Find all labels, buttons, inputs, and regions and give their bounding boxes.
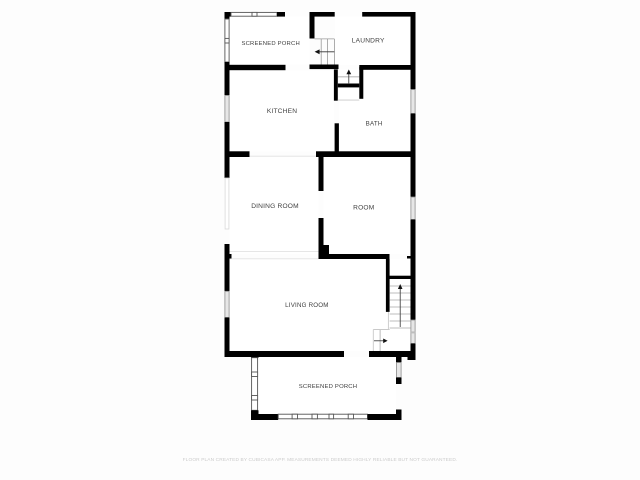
svg-text:SCREENED PORCH: SCREENED PORCH xyxy=(241,41,299,47)
svg-text:LAUNDRY: LAUNDRY xyxy=(352,38,385,45)
svg-text:ROOM: ROOM xyxy=(353,204,374,211)
svg-text:KITCHEN: KITCHEN xyxy=(267,108,297,115)
svg-text:SCREENED PORCH: SCREENED PORCH xyxy=(299,384,357,390)
svg-text:LIVING ROOM: LIVING ROOM xyxy=(285,302,328,309)
svg-text:BATH: BATH xyxy=(366,120,383,127)
svg-text:FLOOR PLAN CREATED BY CUBICASA: FLOOR PLAN CREATED BY CUBICASA APP. MEAS… xyxy=(183,457,458,463)
svg-text:DINING ROOM: DINING ROOM xyxy=(251,203,299,210)
